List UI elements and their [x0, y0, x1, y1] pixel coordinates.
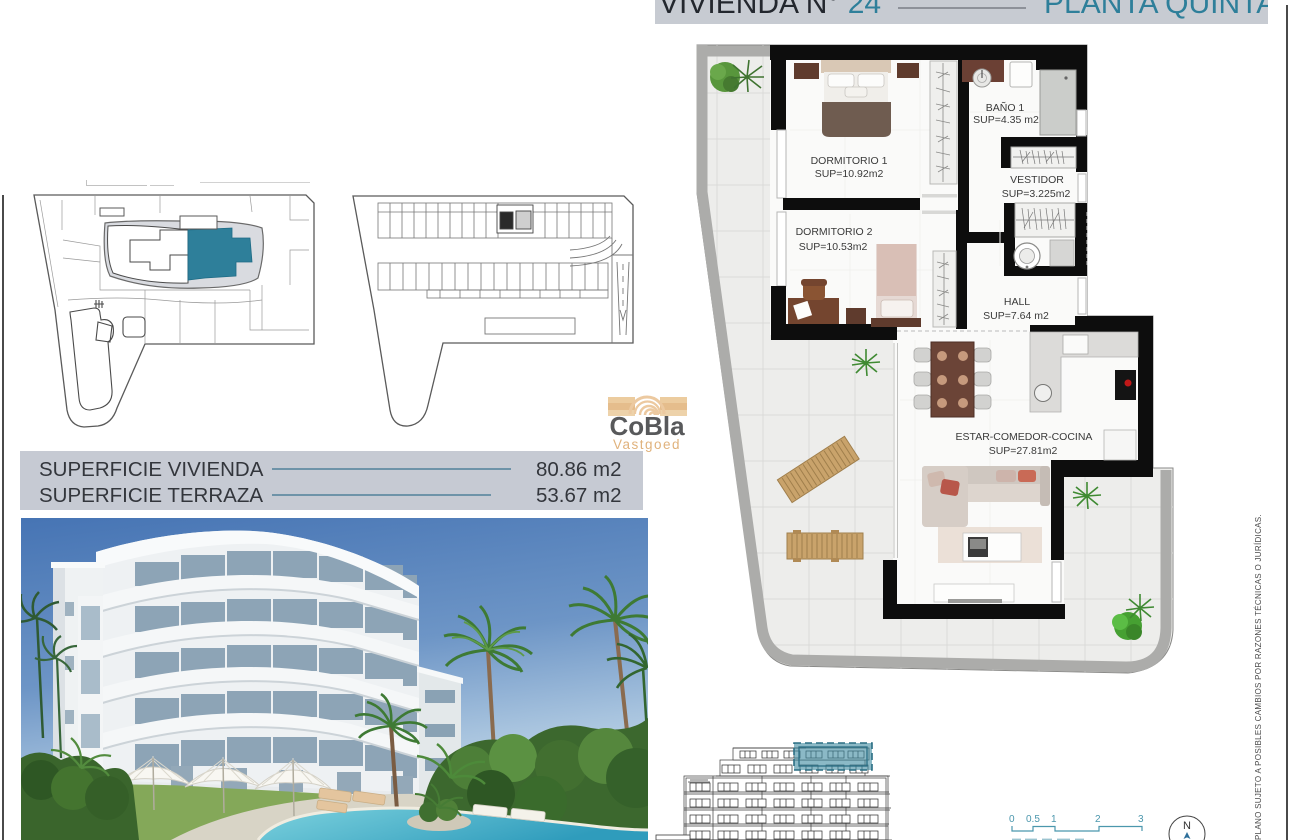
svg-text:VESTIDOR: VESTIDOR: [1010, 174, 1064, 186]
svg-text:BAÑO 1: BAÑO 1: [986, 101, 1025, 114]
svg-text:ESTAR-COMEDOR-COCINA: ESTAR-COMEDOR-COCINA: [956, 431, 1093, 443]
svg-text:SUP=10.53m2: SUP=10.53m2: [799, 241, 868, 253]
svg-text:3: 3: [1138, 814, 1144, 825]
svg-text:Vastgoed: Vastgoed: [613, 437, 681, 452]
svg-text:SUP=27.81m2: SUP=27.81m2: [989, 445, 1058, 457]
svg-text:SUP=10.92m2: SUP=10.92m2: [815, 168, 884, 180]
svg-text:SUP=4.35 m2: SUP=4.35 m2: [973, 114, 1039, 126]
svg-text:1: 1: [1051, 814, 1057, 825]
svg-text:N: N: [1183, 820, 1191, 832]
svg-text:SUP=7.64 m2: SUP=7.64 m2: [983, 310, 1049, 322]
svg-text:0: 0: [1009, 814, 1015, 825]
svg-text:DORMITORIO 1: DORMITORIO 1: [811, 155, 888, 167]
svg-text:SUP=3.225m2: SUP=3.225m2: [1002, 188, 1071, 200]
svg-text:HALL: HALL: [1004, 296, 1030, 308]
svg-text:2: 2: [1095, 814, 1101, 825]
svg-text:DORMITORIO 2: DORMITORIO 2: [796, 226, 873, 238]
svg-text:0.5: 0.5: [1026, 814, 1040, 825]
